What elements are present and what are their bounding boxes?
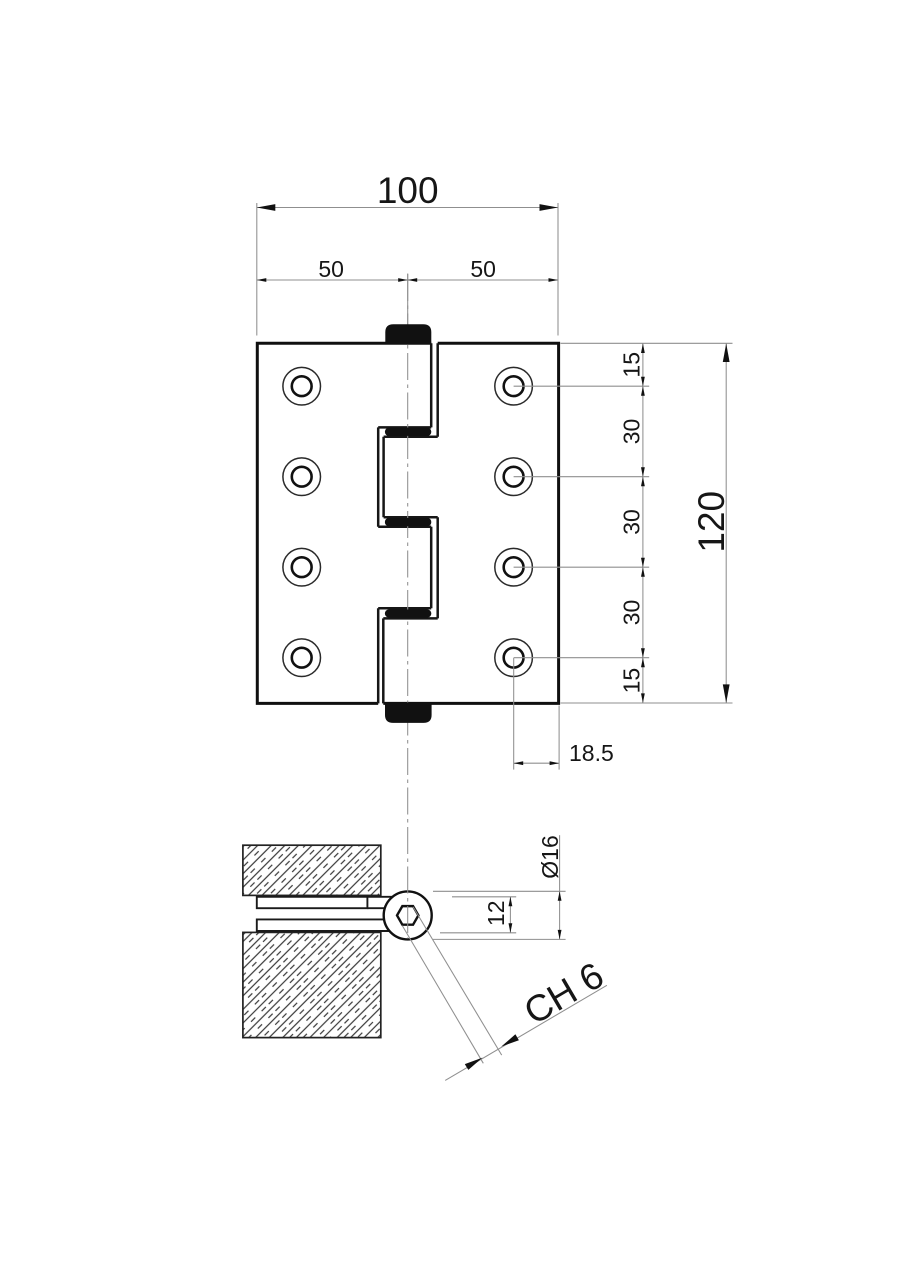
svg-text:30: 30 bbox=[618, 509, 644, 535]
svg-text:15: 15 bbox=[618, 668, 644, 694]
svg-text:120: 120 bbox=[691, 491, 732, 553]
svg-text:15: 15 bbox=[618, 352, 644, 378]
svg-text:100: 100 bbox=[377, 170, 439, 211]
svg-text:18.5: 18.5 bbox=[569, 740, 614, 766]
svg-text:12: 12 bbox=[483, 901, 509, 927]
svg-text:50: 50 bbox=[470, 256, 496, 282]
svg-text:30: 30 bbox=[618, 419, 644, 445]
svg-text:Ø16: Ø16 bbox=[537, 835, 563, 878]
svg-text:50: 50 bbox=[318, 256, 344, 282]
svg-text:30: 30 bbox=[618, 600, 644, 626]
